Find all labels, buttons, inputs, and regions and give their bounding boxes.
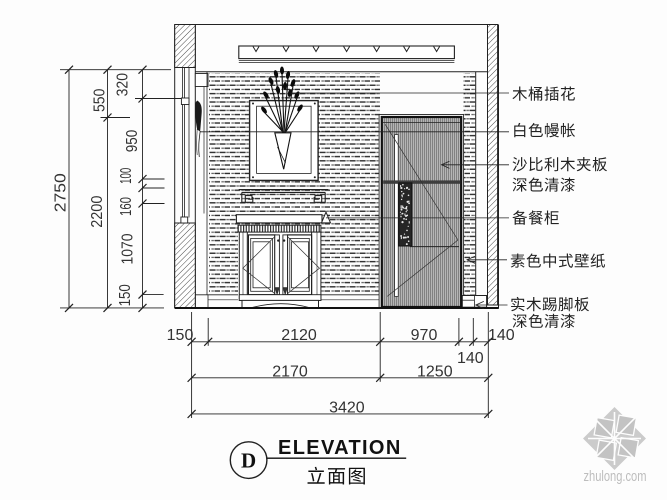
svg-text:2200: 2200 (89, 195, 106, 228)
svg-text:1070: 1070 (120, 233, 137, 264)
svg-text:D: D (241, 449, 256, 473)
svg-text:zhulong.com: zhulong.com (584, 469, 647, 485)
svg-text:2170: 2170 (272, 363, 308, 380)
svg-text:140: 140 (457, 350, 484, 367)
svg-text:ELEVATION: ELEVATION (278, 437, 402, 459)
svg-text:970: 970 (411, 327, 438, 344)
svg-text:950: 950 (124, 129, 141, 152)
svg-text:160: 160 (118, 197, 135, 216)
svg-text:140: 140 (488, 327, 515, 344)
svg-text:100: 100 (118, 168, 135, 184)
svg-text:2750: 2750 (53, 173, 70, 212)
svg-text:3420: 3420 (329, 399, 365, 416)
svg-text:320: 320 (115, 73, 132, 97)
svg-text:1250: 1250 (417, 363, 453, 380)
svg-text:150: 150 (117, 284, 134, 307)
svg-text:150: 150 (167, 327, 194, 344)
svg-text:2120: 2120 (281, 327, 317, 344)
svg-text:550: 550 (92, 88, 109, 112)
